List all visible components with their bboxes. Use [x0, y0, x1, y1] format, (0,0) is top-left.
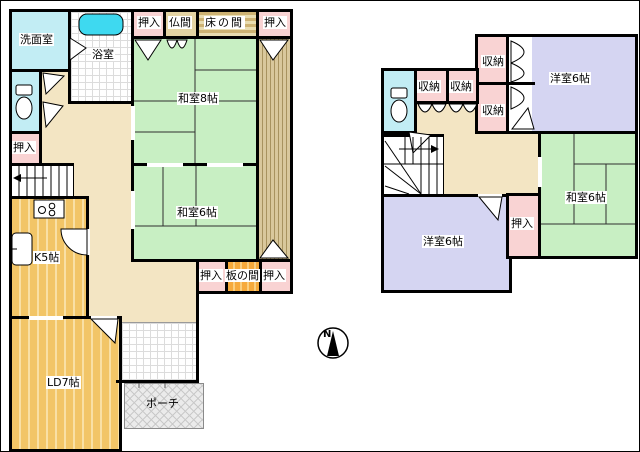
closet-2f-label: 押入	[510, 217, 534, 230]
washitsu-2f-label: 和室6帖	[565, 191, 607, 204]
closet-bottom-b-label: 押入	[262, 269, 286, 282]
storage-a-label: 収納	[417, 80, 441, 93]
floor1-toilet	[9, 69, 42, 134]
western-room-bottom-label: 洋室6帖	[422, 235, 464, 248]
floor1-engawa	[256, 36, 293, 262]
compass: N	[318, 328, 348, 358]
tokonoma-label: 床の間	[204, 16, 245, 29]
floor1-genkan	[122, 323, 196, 380]
washroom-label: 洗面室	[19, 33, 54, 46]
storage-b-label: 収納	[449, 80, 473, 93]
western-room-top-label: 洋室6帖	[549, 72, 591, 85]
closet-top-b-label: 押入	[263, 16, 287, 29]
porch-label: ポーチ	[145, 397, 180, 410]
closet-left-label: 押入	[12, 141, 36, 154]
storage-c-label: 収納	[481, 55, 505, 68]
living-dining-label: LD7帖	[46, 376, 81, 389]
floor1-genkan-step	[122, 322, 196, 323]
floor-plan-canvas: N 洗面室 浴室 押入 押入 仏間 床の間 押入 和室8帖 和室6帖 押入 板の…	[0, 0, 640, 452]
floor2-toilet	[381, 68, 417, 134]
floor1-stairs	[9, 163, 74, 199]
bathroom-label: 浴室	[91, 48, 115, 61]
washitsu8-label: 和室8帖	[177, 92, 219, 105]
closet-top-a-label: 押入	[137, 16, 161, 29]
itanoma-label: 板の間	[225, 269, 260, 282]
compass-north-label: N	[323, 329, 331, 340]
floor2-door-strip	[509, 37, 532, 131]
butsuma-label: 仏間	[168, 16, 192, 29]
washitsu6-label: 和室6帖	[176, 206, 218, 219]
kitchen-label: K5帖	[33, 251, 60, 264]
compass-needle	[327, 331, 339, 356]
floor1-genkan-wall-bottom	[116, 380, 199, 383]
storage-d-label: 収納	[481, 104, 505, 117]
closet-bottom-a-label: 押入	[199, 269, 223, 282]
floor1-genkan-wall-right	[196, 291, 199, 383]
floor2-stairs	[381, 134, 444, 197]
